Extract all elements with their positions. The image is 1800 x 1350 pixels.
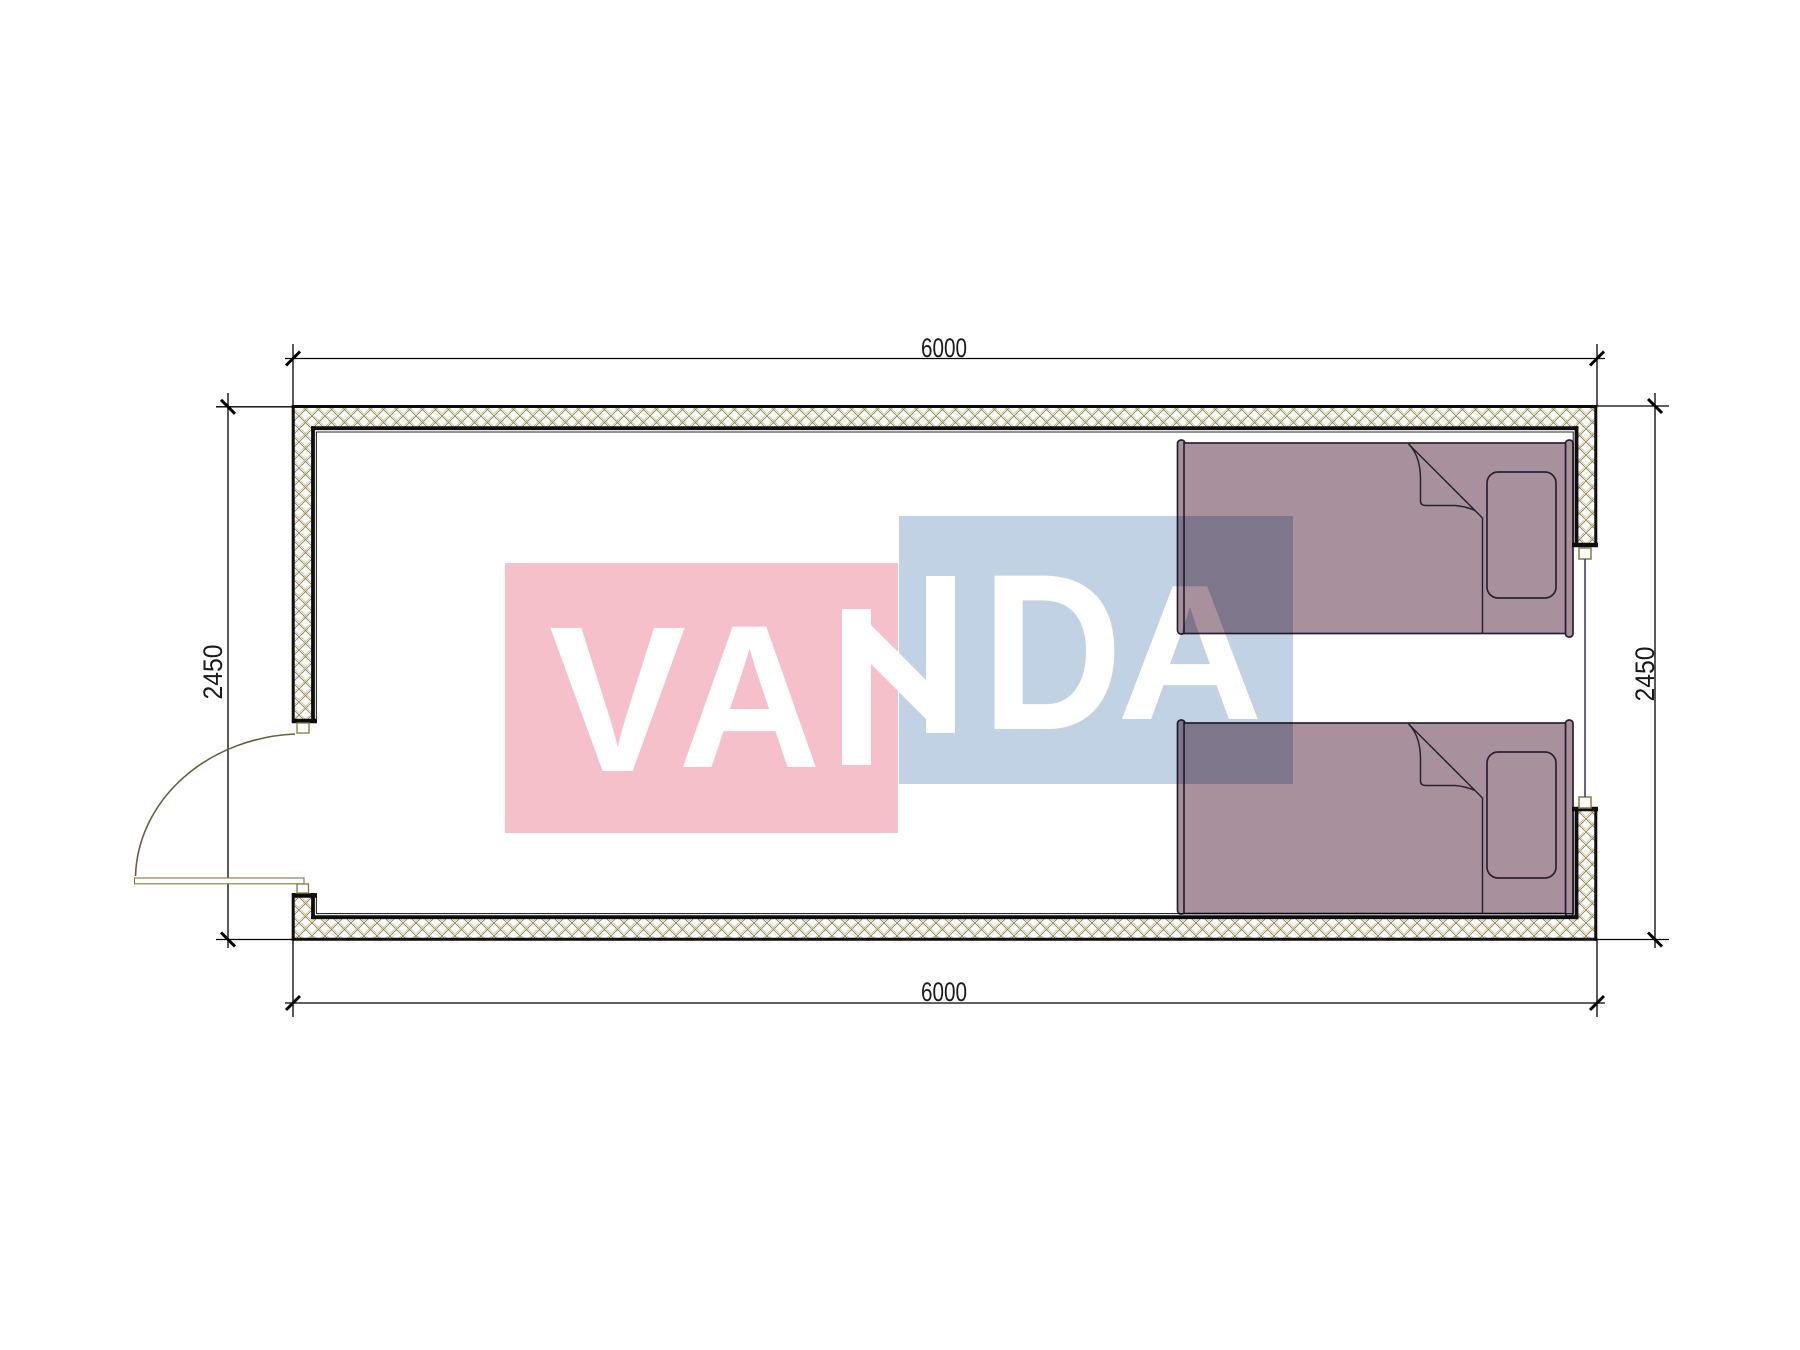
svg-text:D: D (982, 528, 1123, 777)
svg-text:6000: 6000 (921, 333, 967, 363)
svg-text:2450: 2450 (1630, 647, 1660, 702)
svg-text:A: A (678, 583, 821, 811)
svg-text:6000: 6000 (921, 977, 967, 1007)
svg-text:2450: 2450 (198, 645, 228, 700)
svg-text:V: V (549, 584, 686, 816)
